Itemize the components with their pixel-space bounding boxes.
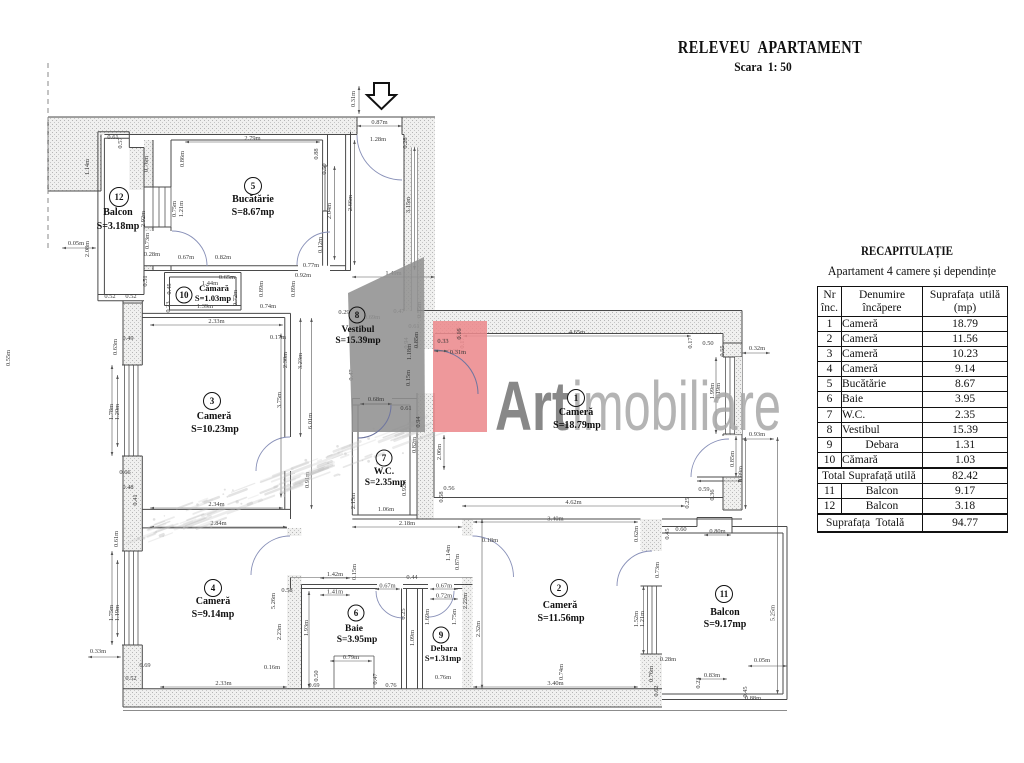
svg-text:0.33: 0.33: [437, 338, 448, 345]
svg-text:1.75m: 1.75m: [451, 609, 458, 625]
svg-text:Bucătărie: Bucătărie: [232, 194, 274, 205]
svg-text:10: 10: [180, 290, 190, 300]
svg-text:0.62m: 0.62m: [633, 526, 640, 542]
svg-text:Vestibul: Vestibul: [342, 325, 375, 335]
svg-text:0.67m: 0.67m: [436, 583, 452, 590]
svg-text:Debara: Debara: [431, 643, 459, 653]
svg-text:0.59: 0.59: [698, 486, 709, 493]
svg-text:W.C.: W.C.: [374, 467, 394, 477]
svg-text:0.18m: 0.18m: [482, 537, 498, 544]
svg-text:0.62: 0.62: [653, 685, 660, 696]
svg-text:1.14m: 1.14m: [84, 159, 91, 175]
svg-text:0.49: 0.49: [122, 335, 133, 342]
svg-text:0.68m: 0.68m: [368, 396, 384, 403]
svg-text:4: 4: [211, 583, 216, 593]
svg-text:2.66m: 2.66m: [347, 195, 354, 211]
svg-text:Balcon: Balcon: [710, 607, 740, 618]
svg-text:0.72m: 0.72m: [436, 593, 452, 600]
svg-text:1.39m: 1.39m: [197, 303, 213, 310]
svg-text:1.69m: 1.69m: [424, 609, 431, 625]
svg-text:0.17: 0.17: [687, 337, 694, 349]
svg-text:0.66: 0.66: [119, 469, 130, 476]
svg-text:7: 7: [382, 453, 387, 463]
svg-text:S=15.39mp: S=15.39mp: [335, 336, 380, 346]
svg-text:0.05m: 0.05m: [68, 240, 84, 247]
svg-text:0.83m: 0.83m: [704, 672, 720, 679]
svg-text:Art: Art: [495, 367, 569, 445]
svg-text:0.23: 0.23: [165, 301, 172, 312]
svg-text:Cămară: Cămară: [199, 283, 229, 293]
svg-text:S=2.35mp: S=2.35mp: [365, 478, 406, 488]
svg-text:0.58: 0.58: [438, 491, 445, 502]
svg-text:1.93m: 1.93m: [303, 620, 310, 636]
svg-text:S=3.18mp: S=3.18mp: [97, 221, 140, 232]
svg-text:1.19m: 1.19m: [114, 605, 121, 621]
svg-text:0.76: 0.76: [385, 682, 396, 689]
svg-text:S=11.56mp: S=11.56mp: [537, 613, 585, 624]
svg-text:0.73m: 0.73m: [654, 562, 661, 578]
svg-text:0.85m: 0.85m: [413, 332, 420, 348]
svg-text:S=9.17mp: S=9.17mp: [704, 619, 747, 630]
svg-text:Baie: Baie: [345, 624, 363, 634]
svg-text:0.32m: 0.32m: [749, 345, 765, 352]
svg-text:0.15m: 0.15m: [405, 370, 412, 386]
svg-text:1.06m: 1.06m: [378, 506, 394, 513]
svg-text:1.41m: 1.41m: [327, 589, 343, 596]
svg-text:6.01m: 6.01m: [307, 413, 314, 429]
svg-text:0.16: 0.16: [456, 328, 463, 339]
svg-text:0.33m: 0.33m: [90, 648, 106, 655]
svg-text:Cameră: Cameră: [559, 407, 593, 418]
svg-text:0.58: 0.58: [281, 587, 292, 594]
svg-text:0.31m: 0.31m: [350, 91, 357, 107]
svg-text:2.08m: 2.08m: [84, 241, 91, 257]
svg-text:0.45: 0.45: [664, 528, 671, 539]
svg-text:0.31m: 0.31m: [450, 349, 466, 356]
svg-text:1.14m: 1.14m: [445, 545, 452, 561]
svg-text:0.76m: 0.76m: [435, 674, 451, 681]
svg-text:0.12m: 0.12m: [317, 237, 324, 253]
svg-text:0.51: 0.51: [142, 275, 149, 286]
svg-text:0.77m: 0.77m: [303, 262, 319, 269]
svg-text:9: 9: [439, 630, 444, 640]
svg-text:0.23: 0.23: [695, 677, 702, 688]
svg-text:0.16m: 0.16m: [264, 664, 280, 671]
svg-text:S=18.79mp: S=18.79mp: [553, 420, 601, 431]
svg-text:2.18m: 2.18m: [399, 520, 415, 527]
svg-text:0.57: 0.57: [117, 137, 124, 149]
svg-text:1.21m: 1.21m: [639, 611, 646, 627]
svg-text:S=9.14mp: S=9.14mp: [192, 609, 235, 620]
svg-text:2.32m: 2.32m: [475, 621, 482, 637]
svg-text:S=8.67mp: S=8.67mp: [232, 207, 275, 218]
svg-text:0.55: 0.55: [719, 345, 726, 356]
svg-text:0.52: 0.52: [104, 293, 115, 300]
svg-text:0.17m: 0.17m: [270, 334, 286, 341]
svg-text:8: 8: [355, 310, 360, 320]
svg-text:4.62m: 4.62m: [565, 499, 581, 506]
svg-text:3.15m: 3.15m: [405, 197, 412, 213]
svg-text:4.65m: 4.65m: [569, 329, 585, 336]
svg-text:2.15m: 2.15m: [350, 493, 357, 509]
svg-text:imobiliare: imobiliare: [572, 367, 781, 445]
svg-text:Cameră: Cameră: [197, 411, 231, 422]
svg-text:0.74m: 0.74m: [558, 664, 565, 680]
svg-text:0.76m: 0.76m: [143, 156, 150, 172]
svg-text:1.21m: 1.21m: [178, 201, 185, 217]
svg-text:0.48: 0.48: [122, 484, 133, 491]
svg-text:1.42m: 1.42m: [327, 571, 343, 578]
svg-text:0.61: 0.61: [400, 405, 411, 412]
svg-text:0.50: 0.50: [313, 670, 320, 681]
svg-text:11: 11: [720, 589, 729, 599]
svg-text:0.89m: 0.89m: [290, 281, 297, 297]
svg-text:0.41: 0.41: [132, 494, 139, 505]
svg-text:2.30m: 2.30m: [282, 352, 289, 368]
svg-text:6: 6: [354, 608, 359, 618]
svg-text:0.28: 0.28: [402, 137, 409, 148]
svg-text:0.69: 0.69: [308, 682, 319, 689]
svg-text:1.20m: 1.20m: [114, 404, 121, 420]
svg-text:Cameră: Cameră: [543, 600, 577, 611]
svg-text:0.87m: 0.87m: [371, 119, 387, 126]
svg-text:Balcon: Balcon: [103, 207, 133, 218]
svg-text:0.80m: 0.80m: [709, 528, 725, 535]
svg-text:0.36: 0.36: [709, 489, 716, 500]
svg-text:0.29: 0.29: [338, 309, 349, 316]
svg-text:0.56: 0.56: [443, 485, 454, 492]
svg-text:Cameră: Cameră: [196, 596, 230, 607]
svg-text:5.26m: 5.26m: [270, 593, 277, 609]
svg-text:0.05m: 0.05m: [754, 657, 770, 664]
svg-text:0.75m: 0.75m: [171, 201, 178, 217]
svg-text:0.76m: 0.76m: [648, 666, 655, 682]
svg-text:2.04m: 2.04m: [326, 203, 333, 219]
svg-text:0.74m: 0.74m: [260, 303, 276, 310]
svg-text:0.47: 0.47: [372, 673, 379, 685]
svg-text:2.79m: 2.79m: [244, 135, 260, 142]
svg-text:0.92m: 0.92m: [295, 272, 311, 279]
svg-text:0.82m: 0.82m: [215, 254, 231, 261]
svg-text:0.88m: 0.88m: [745, 695, 761, 702]
svg-text:0.25: 0.25: [684, 497, 691, 508]
svg-text:0.50: 0.50: [702, 340, 713, 347]
svg-text:5: 5: [251, 181, 256, 191]
svg-text:3.23m: 3.23m: [297, 353, 304, 369]
svg-text:S=1.03mp: S=1.03mp: [195, 293, 232, 303]
svg-text:3.75m: 3.75m: [276, 392, 283, 408]
svg-text:3: 3: [210, 396, 215, 406]
svg-text:0.63m: 0.63m: [112, 339, 119, 355]
svg-text:0.94: 0.94: [415, 416, 422, 428]
svg-text:0.28m: 0.28m: [660, 656, 676, 663]
svg-text:2.92m: 2.92m: [140, 211, 147, 227]
svg-text:0.65m: 0.65m: [219, 274, 235, 281]
svg-text:0.28m: 0.28m: [144, 251, 160, 258]
svg-text:0.86m: 0.86m: [179, 151, 186, 167]
svg-text:2.33m: 2.33m: [208, 318, 224, 325]
svg-text:1.18m: 1.18m: [406, 344, 413, 360]
svg-text:0.52: 0.52: [125, 675, 136, 682]
svg-text:S=3.95mp: S=3.95mp: [337, 635, 378, 645]
svg-text:3.40m: 3.40m: [547, 516, 563, 523]
svg-text:0.60: 0.60: [675, 526, 686, 533]
svg-text:2: 2: [557, 583, 562, 593]
svg-text:S=10.23mp: S=10.23mp: [191, 424, 239, 435]
svg-text:1.09m: 1.09m: [409, 630, 416, 646]
svg-text:0.85m: 0.85m: [729, 451, 736, 467]
svg-text:0.67m: 0.67m: [178, 254, 194, 261]
svg-text:0.69: 0.69: [139, 662, 150, 669]
svg-text:2.06m: 2.06m: [436, 444, 443, 460]
svg-text:2.33m: 2.33m: [215, 680, 231, 687]
svg-text:0.79m: 0.79m: [343, 654, 359, 661]
svg-text:0.87m: 0.87m: [454, 554, 461, 570]
svg-text:0.25: 0.25: [400, 608, 407, 619]
svg-text:0.55m: 0.55m: [5, 350, 12, 366]
svg-text:0.88: 0.88: [313, 148, 320, 159]
svg-text:0.99m: 0.99m: [738, 466, 745, 482]
svg-text:1.28m: 1.28m: [370, 136, 386, 143]
svg-text:0.50: 0.50: [321, 163, 328, 174]
svg-text:0.72m: 0.72m: [232, 290, 239, 306]
svg-text:0.45: 0.45: [166, 283, 173, 294]
svg-text:0.67m: 0.67m: [379, 583, 395, 590]
svg-text:S=1.31mp: S=1.31mp: [425, 653, 462, 663]
svg-text:0.52: 0.52: [125, 293, 136, 300]
svg-text:1: 1: [574, 393, 579, 403]
svg-text:0.73m: 0.73m: [144, 233, 151, 249]
svg-text:0.89m: 0.89m: [258, 281, 265, 297]
svg-text:12: 12: [115, 192, 125, 202]
svg-text:2.23m: 2.23m: [276, 624, 283, 640]
svg-text:0.61m: 0.61m: [113, 531, 120, 547]
svg-text:5.25m: 5.25m: [770, 605, 777, 621]
svg-text:2.22m: 2.22m: [462, 593, 469, 609]
